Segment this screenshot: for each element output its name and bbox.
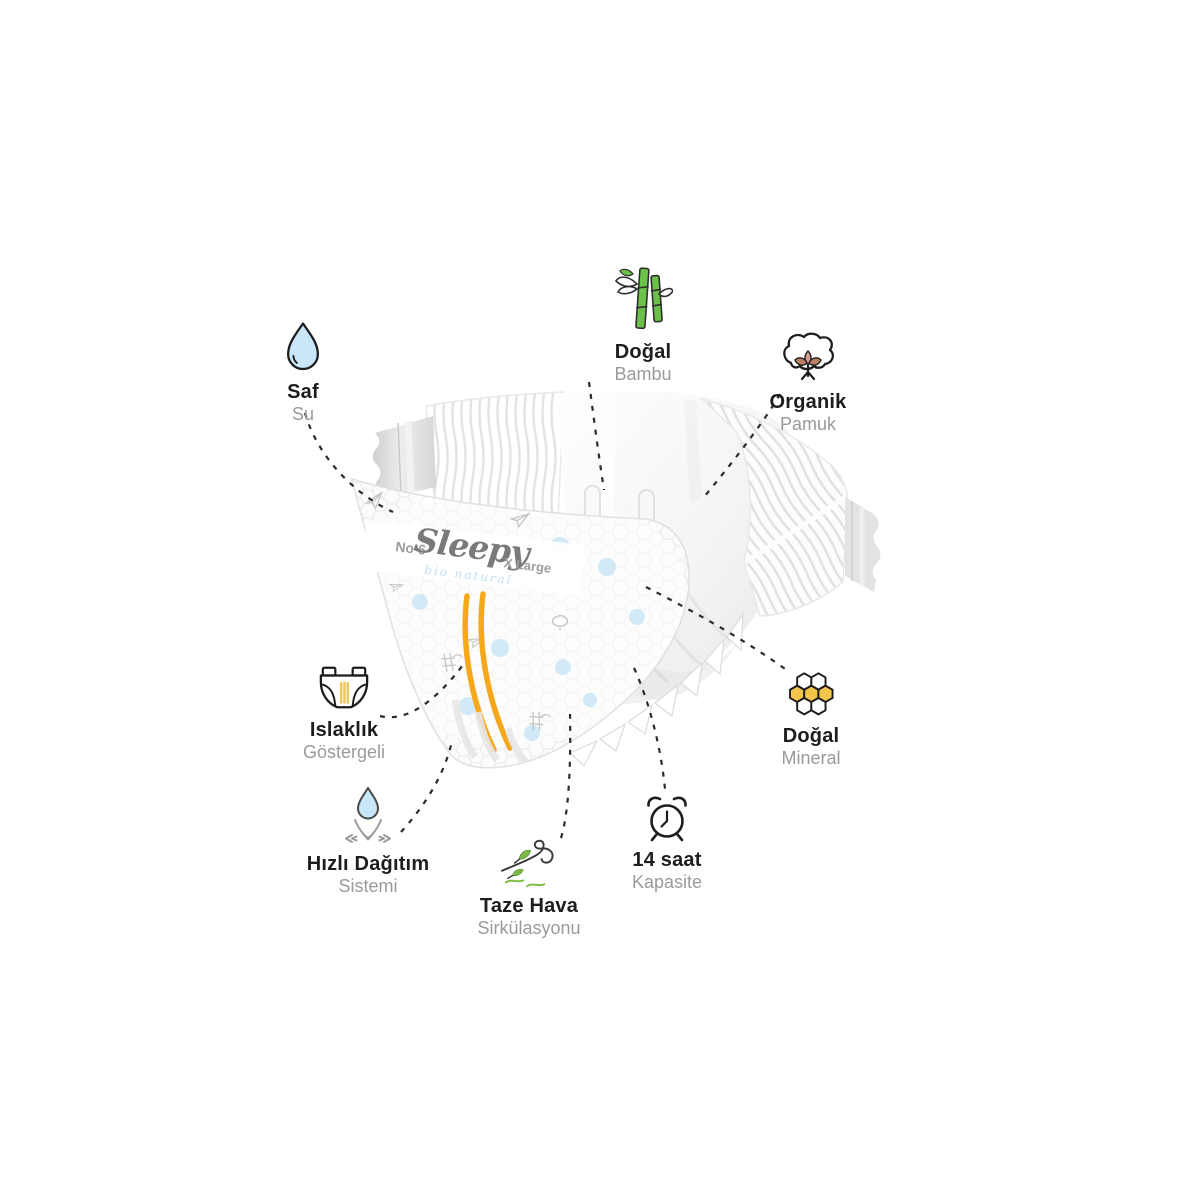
feature-title: Saf [287,381,319,403]
page: No 6 Sleepy bio natural X Large [0,0,1200,1200]
feature-14-saat: 14 saat Kapasite [572,792,762,894]
diaper-icon [313,662,375,714]
feature-subtitle: Su [292,403,314,426]
feature-title: Doğal [615,341,672,363]
absorb-arrows-icon [338,786,398,848]
feature-title: 14 saat [632,849,701,871]
feature-islaklik-gostergeli: Islaklık Göstergeli [249,662,439,764]
feature-title: Hızlı Dağıtım [307,853,430,875]
feature-title: Doğal [783,725,840,747]
feature-title: Islaklık [310,719,378,741]
feature-subtitle: Kapasite [632,871,702,894]
feature-subtitle: Sistemi [338,875,397,898]
feature-subtitle: Bambu [614,363,671,386]
feature-dogal-mineral: Doğal Mineral [716,670,906,770]
feature-title: Taze Hava [480,895,578,917]
alarm-clock-icon [640,792,694,844]
diaper-illustration: No 6 Sleepy bio natural X Large [0,0,1200,1200]
feature-dogal-bambu: Doğal Bambu [548,262,738,386]
feature-subtitle: Pamuk [780,413,836,436]
wind-leaf-icon [497,836,561,890]
bamboo-icon [613,262,673,336]
feature-saf-su: Saf Su [208,320,398,426]
feature-subtitle: Sirkülasyonu [477,917,580,940]
water-drop-icon [278,320,328,376]
cotton-icon [779,330,837,386]
feature-title: Organik [770,391,847,413]
feature-subtitle: Mineral [781,747,840,770]
diaper-fastener-tab-right [845,497,881,592]
feature-organik-pamuk: Organik Pamuk [713,330,903,436]
feature-subtitle: Göstergeli [303,741,385,764]
honeycomb-icon [784,670,838,720]
